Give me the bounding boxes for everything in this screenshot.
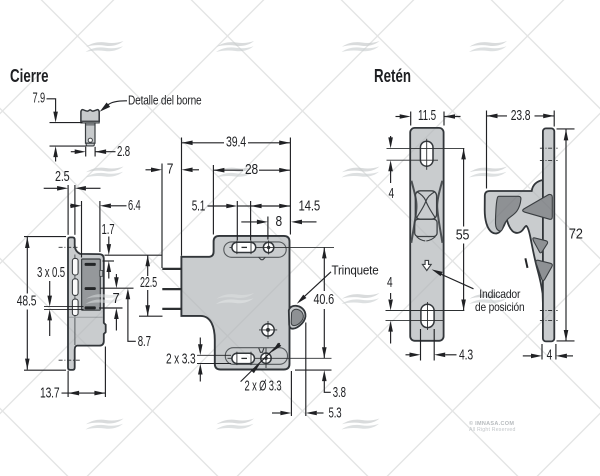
svg-text:2.8: 2.8	[117, 144, 130, 160]
svg-text:4: 4	[387, 275, 393, 291]
svg-text:8: 8	[276, 214, 283, 230]
svg-text:7: 7	[113, 291, 120, 307]
svg-text:Cierre: Cierre	[10, 66, 49, 86]
svg-text:2 x 3.3: 2 x 3.3	[166, 352, 196, 368]
svg-text:© IMNASA.COM: © IMNASA.COM	[469, 420, 514, 427]
svg-text:8.7: 8.7	[138, 334, 151, 350]
svg-text:22.5: 22.5	[140, 275, 157, 291]
svg-text:5.3: 5.3	[329, 406, 342, 422]
svg-text:7: 7	[167, 162, 174, 178]
svg-text:39.4: 39.4	[226, 135, 246, 151]
svg-text:Retén: Retén	[374, 66, 411, 86]
svg-text:3 x 0.5: 3 x 0.5	[37, 265, 65, 281]
svg-text:6.4: 6.4	[128, 198, 141, 214]
svg-text:23.8: 23.8	[511, 108, 531, 124]
svg-text:4.3: 4.3	[459, 347, 473, 363]
svg-text:All Right Reserved: All Right Reserved	[469, 427, 516, 433]
svg-text:Detalle del borne: Detalle del borne	[128, 94, 202, 108]
svg-text:Trinquete: Trinquete	[332, 263, 379, 277]
svg-text:2 x Ø 3.3: 2 x Ø 3.3	[245, 379, 282, 395]
svg-text:1.7: 1.7	[102, 222, 115, 238]
svg-text:55: 55	[456, 228, 470, 244]
svg-text:3.8: 3.8	[333, 385, 346, 401]
svg-text:13.7: 13.7	[40, 385, 60, 401]
svg-text:5.1: 5.1	[192, 198, 206, 214]
svg-text:de posición: de posición	[475, 300, 525, 314]
svg-text:11.5: 11.5	[418, 108, 436, 124]
svg-text:48.5: 48.5	[17, 293, 37, 309]
svg-text:7.9: 7.9	[33, 91, 46, 107]
svg-text:28: 28	[245, 162, 258, 178]
svg-text:40.6: 40.6	[314, 292, 335, 308]
svg-text:14.5: 14.5	[299, 198, 321, 214]
